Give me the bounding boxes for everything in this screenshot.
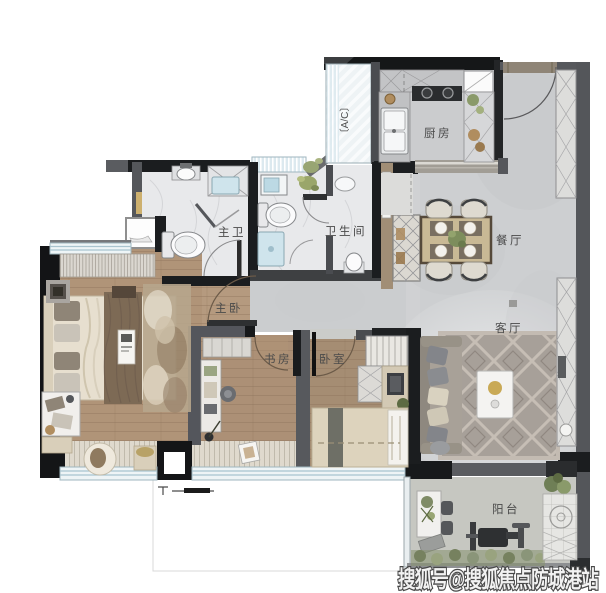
svg-text:客厅: 客厅 [495, 321, 523, 335]
svg-text:主卧: 主卧 [215, 302, 243, 315]
svg-text:主卫: 主卫 [218, 226, 246, 239]
svg-text:搜狐号@搜狐焦点防城港站: 搜狐号@搜狐焦点防城港站 [398, 566, 599, 592]
svg-text:〔A/C〕: 〔A/C〕 [339, 102, 351, 139]
svg-text:卫生间: 卫生间 [325, 224, 367, 238]
svg-text:餐厅: 餐厅 [496, 233, 524, 247]
svg-text:卧室: 卧室 [319, 352, 347, 366]
svg-text:阳台: 阳台 [492, 502, 520, 516]
svg-text:书房: 书房 [264, 353, 292, 366]
svg-text:厨房: 厨房 [424, 127, 452, 140]
